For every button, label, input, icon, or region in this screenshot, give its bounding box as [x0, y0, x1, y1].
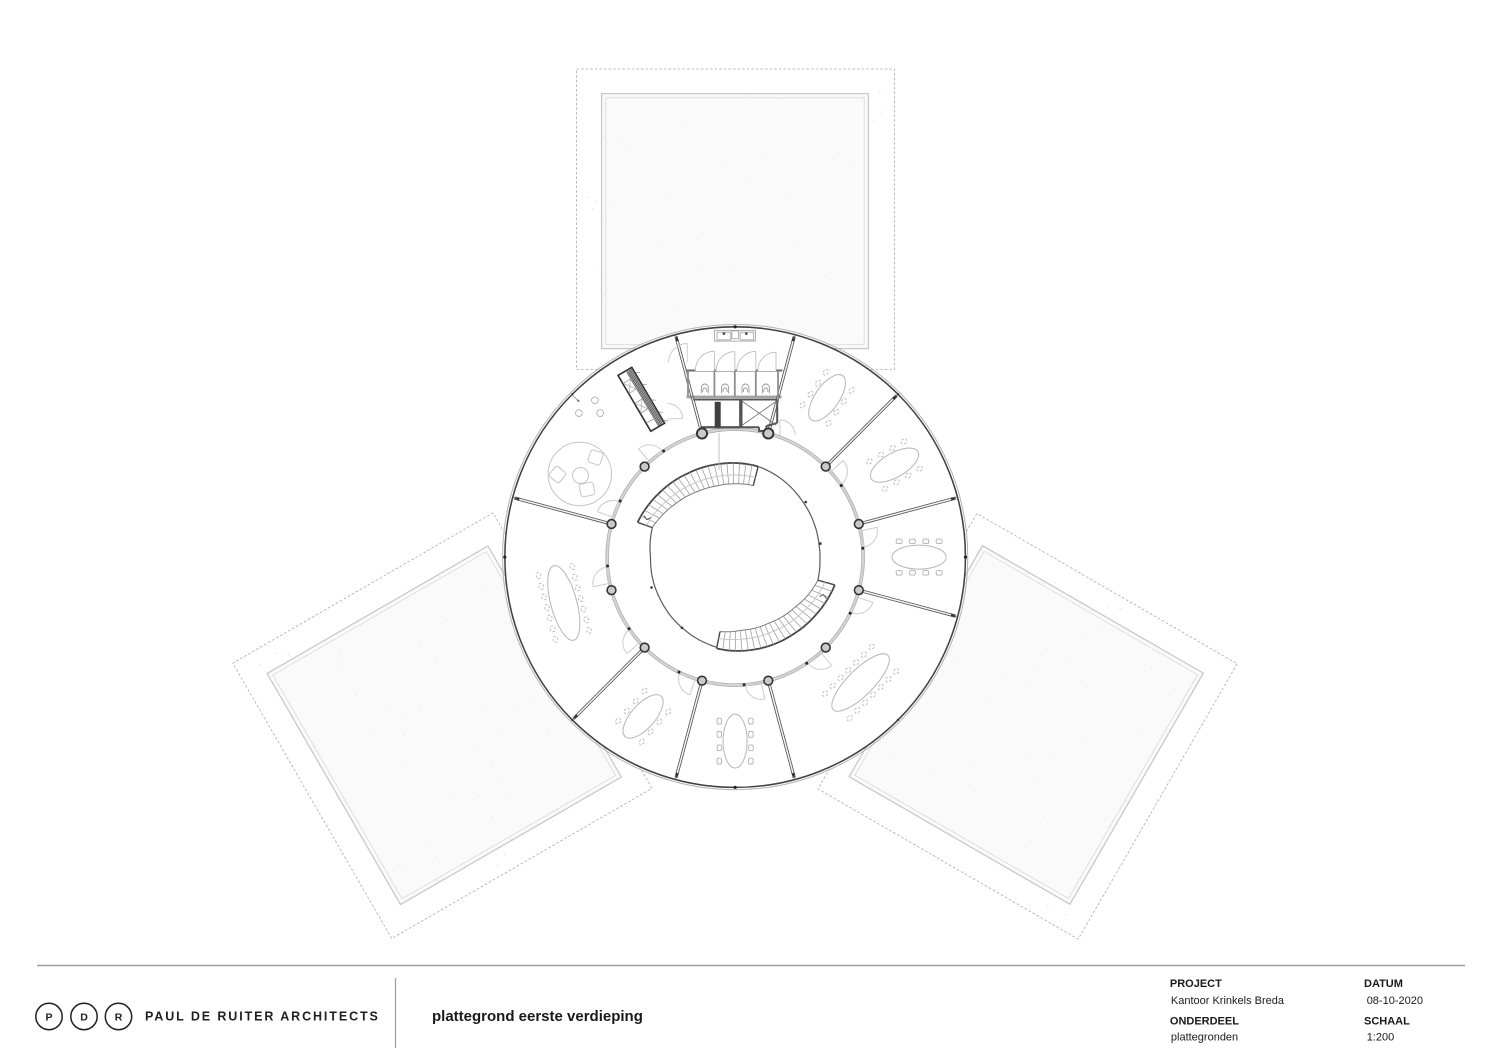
svg-text:P: P: [45, 1011, 52, 1023]
svg-text:1:200: 1:200: [1367, 1032, 1395, 1044]
svg-text:SCHAAL: SCHAAL: [1364, 1016, 1410, 1028]
svg-text:Kantoor Krinkels Breda: Kantoor Krinkels Breda: [1171, 995, 1285, 1007]
svg-text:D: D: [80, 1011, 88, 1023]
svg-text:08-10-2020: 08-10-2020: [1367, 995, 1423, 1007]
svg-text:PROJECT: PROJECT: [1170, 978, 1222, 990]
svg-text:plattegrond eerste verdieping: plattegrond eerste verdieping: [432, 1008, 643, 1025]
svg-text:plattegronden: plattegronden: [1171, 1032, 1238, 1044]
svg-text:ONDERDEEL: ONDERDEEL: [1170, 1016, 1239, 1028]
svg-text:DATUM: DATUM: [1364, 978, 1403, 990]
svg-text:R: R: [115, 1011, 123, 1023]
svg-text:PAUL DE RUITER ARCHITECTS: PAUL DE RUITER ARCHITECTS: [145, 1010, 380, 1024]
